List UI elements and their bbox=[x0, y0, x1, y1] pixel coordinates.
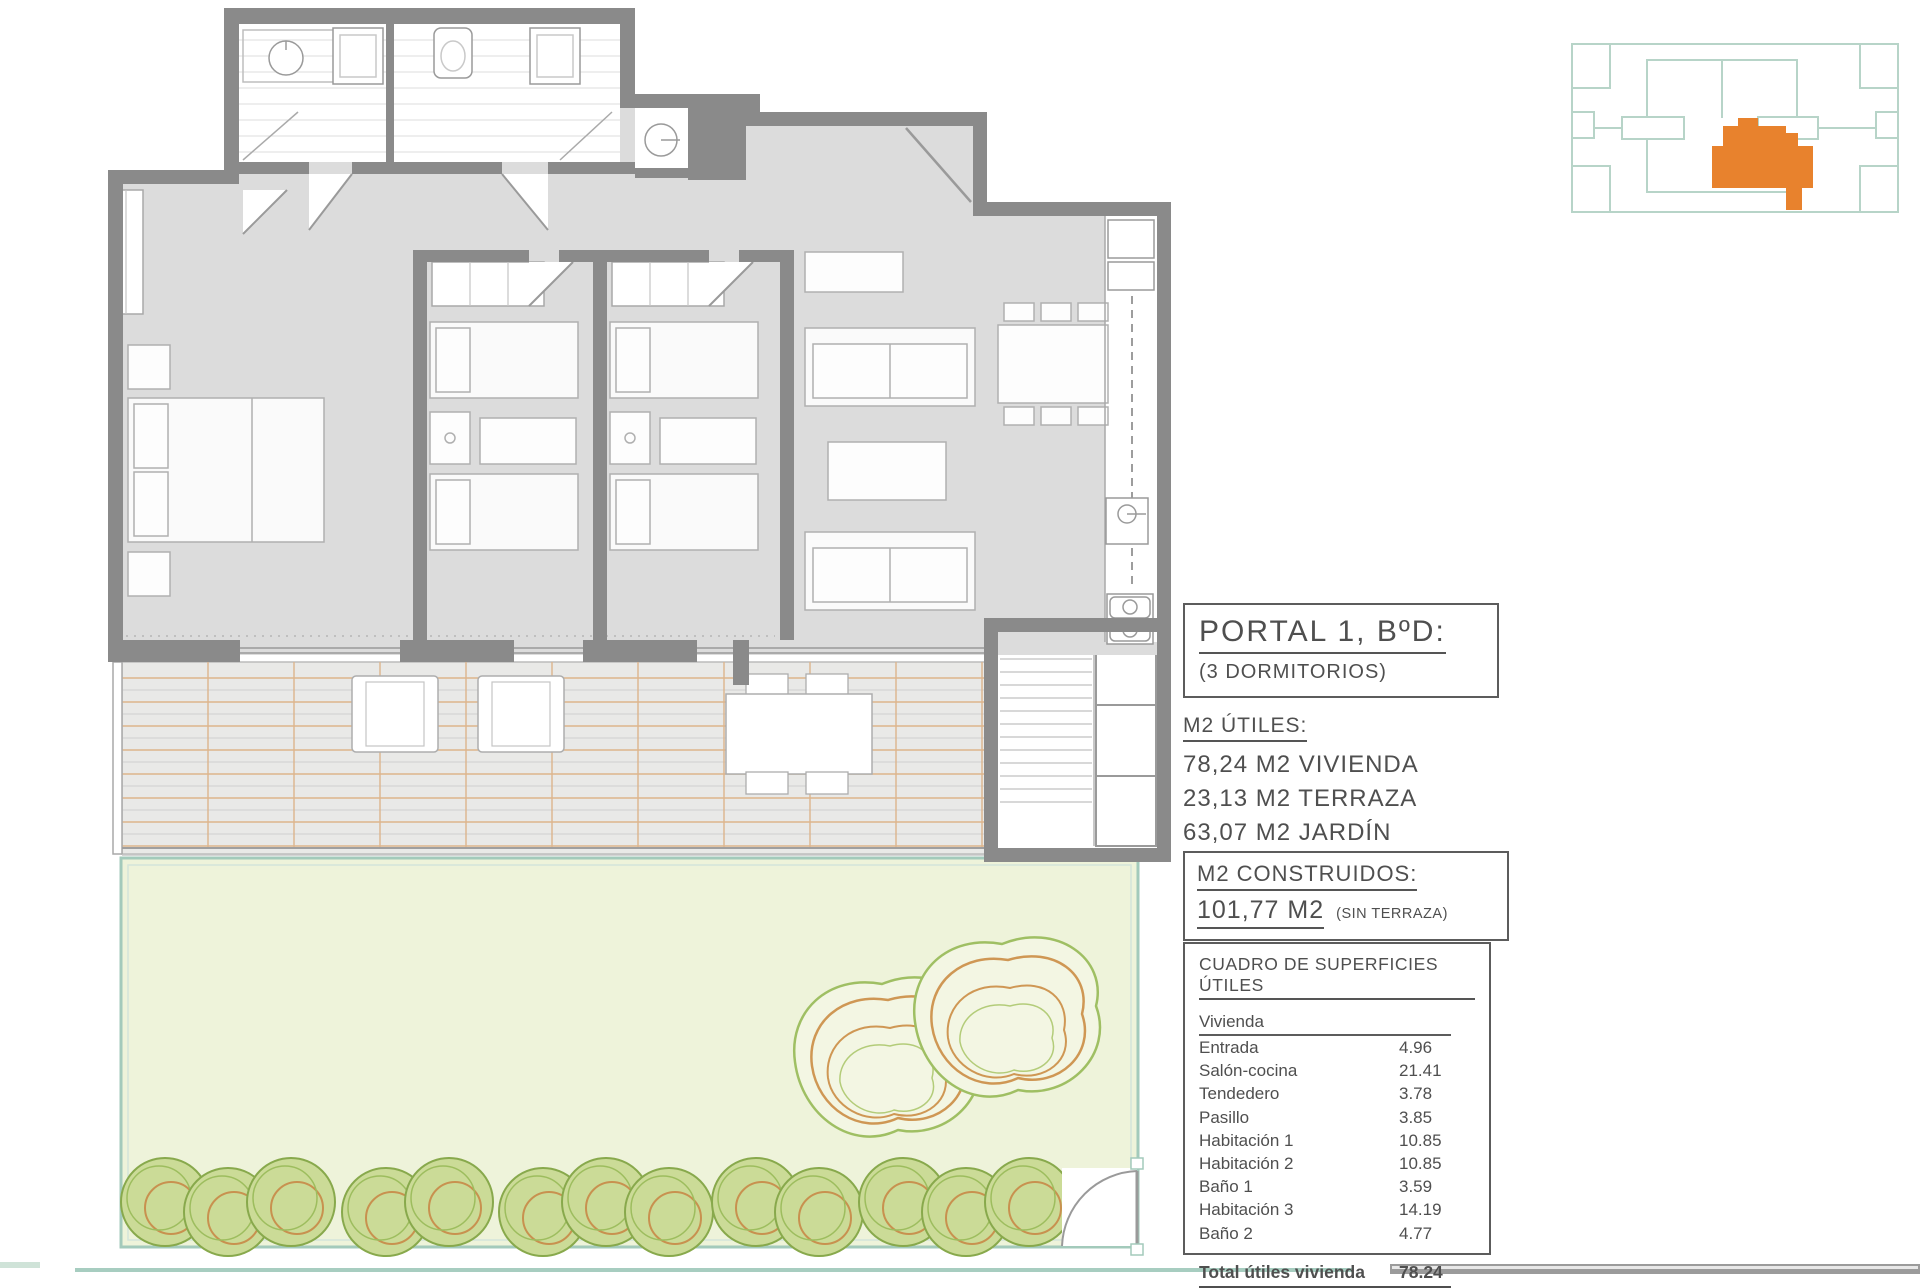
m2-utiles-line: 63,07 M2 JARDÍN bbox=[1183, 816, 1503, 850]
dining-chair bbox=[1004, 303, 1034, 321]
terrace bbox=[113, 662, 992, 855]
coffee-table bbox=[828, 442, 946, 500]
dining-table bbox=[998, 325, 1108, 403]
terrace-armchair bbox=[352, 676, 438, 752]
m2-construidos-note: (SIN TERRAZA) bbox=[1336, 906, 1448, 922]
floor-plan-page: { "panel": { "portal_box": { "title": "P… bbox=[0, 0, 1920, 1280]
table-row: Baño 24.77 bbox=[1199, 1222, 1451, 1245]
garden-tree bbox=[914, 937, 1100, 1096]
garden-gate bbox=[1062, 1158, 1143, 1255]
page-footer-rules bbox=[0, 1262, 1920, 1274]
dining-chair bbox=[1078, 303, 1108, 321]
floor-plan-svg bbox=[0, 0, 1920, 1280]
m2-utiles-section: M2 ÚTILES: 78,24 M2 VIVIENDA 23,13 M2 TE… bbox=[1183, 714, 1503, 850]
garden bbox=[121, 858, 1143, 1256]
bedroom3-closet bbox=[612, 262, 724, 306]
m2-utiles-heading: M2 ÚTILES: bbox=[1183, 714, 1307, 742]
surface-table: CUADRO DE SUPERFICIES ÚTILES Vivienda En… bbox=[1183, 942, 1491, 1255]
table-row: Pasillo3.85 bbox=[1199, 1106, 1451, 1129]
bedroom2-furniture bbox=[430, 322, 578, 550]
surface-table-title: CUADRO DE SUPERFICIES ÚTILES bbox=[1199, 954, 1475, 1000]
table-total-row: Total útiles vivienda 78.24 bbox=[1199, 1262, 1451, 1288]
surface-table-group: Vivienda bbox=[1199, 1012, 1451, 1036]
m2-construidos-heading: M2 CONSTRUIDOS: bbox=[1197, 861, 1417, 891]
bedroom3-furniture bbox=[610, 322, 758, 550]
m2-utiles-line: 23,13 M2 TERRAZA bbox=[1183, 782, 1503, 816]
dining-chair bbox=[1078, 407, 1108, 425]
dining-chair bbox=[1004, 407, 1034, 425]
table-row: Tendedero3.78 bbox=[1199, 1082, 1451, 1105]
store-cabinet bbox=[1096, 776, 1156, 846]
portal-title: PORTAL 1, BºD: bbox=[1199, 615, 1446, 654]
table-row: Entrada4.96 bbox=[1199, 1036, 1451, 1059]
m2-construidos-value: 101,77 M2 bbox=[1197, 896, 1324, 929]
store-cabinet bbox=[1096, 705, 1156, 776]
table-row: Habitación 314.19 bbox=[1199, 1198, 1451, 1221]
sideboard bbox=[805, 252, 903, 292]
m2-utiles-line: 78,24 M2 VIVIENDA bbox=[1183, 748, 1503, 782]
table-row: Salón-cocina21.41 bbox=[1199, 1059, 1451, 1082]
site-plan bbox=[1572, 44, 1898, 212]
portal-subtitle: (3 DORMITORIOS) bbox=[1199, 661, 1483, 684]
dining-chair bbox=[1041, 303, 1071, 321]
dining-chair bbox=[1041, 407, 1071, 425]
terrace-armchair bbox=[478, 676, 564, 752]
m2-construidos-box: M2 CONSTRUIDOS: 101,77 M2 (SIN TERRAZA) bbox=[1183, 851, 1509, 941]
table-row: Baño 13.59 bbox=[1199, 1175, 1451, 1198]
table-row: Habitación 110.85 bbox=[1199, 1129, 1451, 1152]
terrace-left-rail bbox=[113, 662, 122, 854]
bedroom2-closet bbox=[432, 262, 544, 306]
portal-title-box: PORTAL 1, BºD: (3 DORMITORIOS) bbox=[1183, 603, 1499, 698]
stairs-block bbox=[998, 632, 1157, 848]
table-row: Habitación 210.85 bbox=[1199, 1152, 1451, 1175]
bathroom-2-floor bbox=[394, 24, 620, 162]
